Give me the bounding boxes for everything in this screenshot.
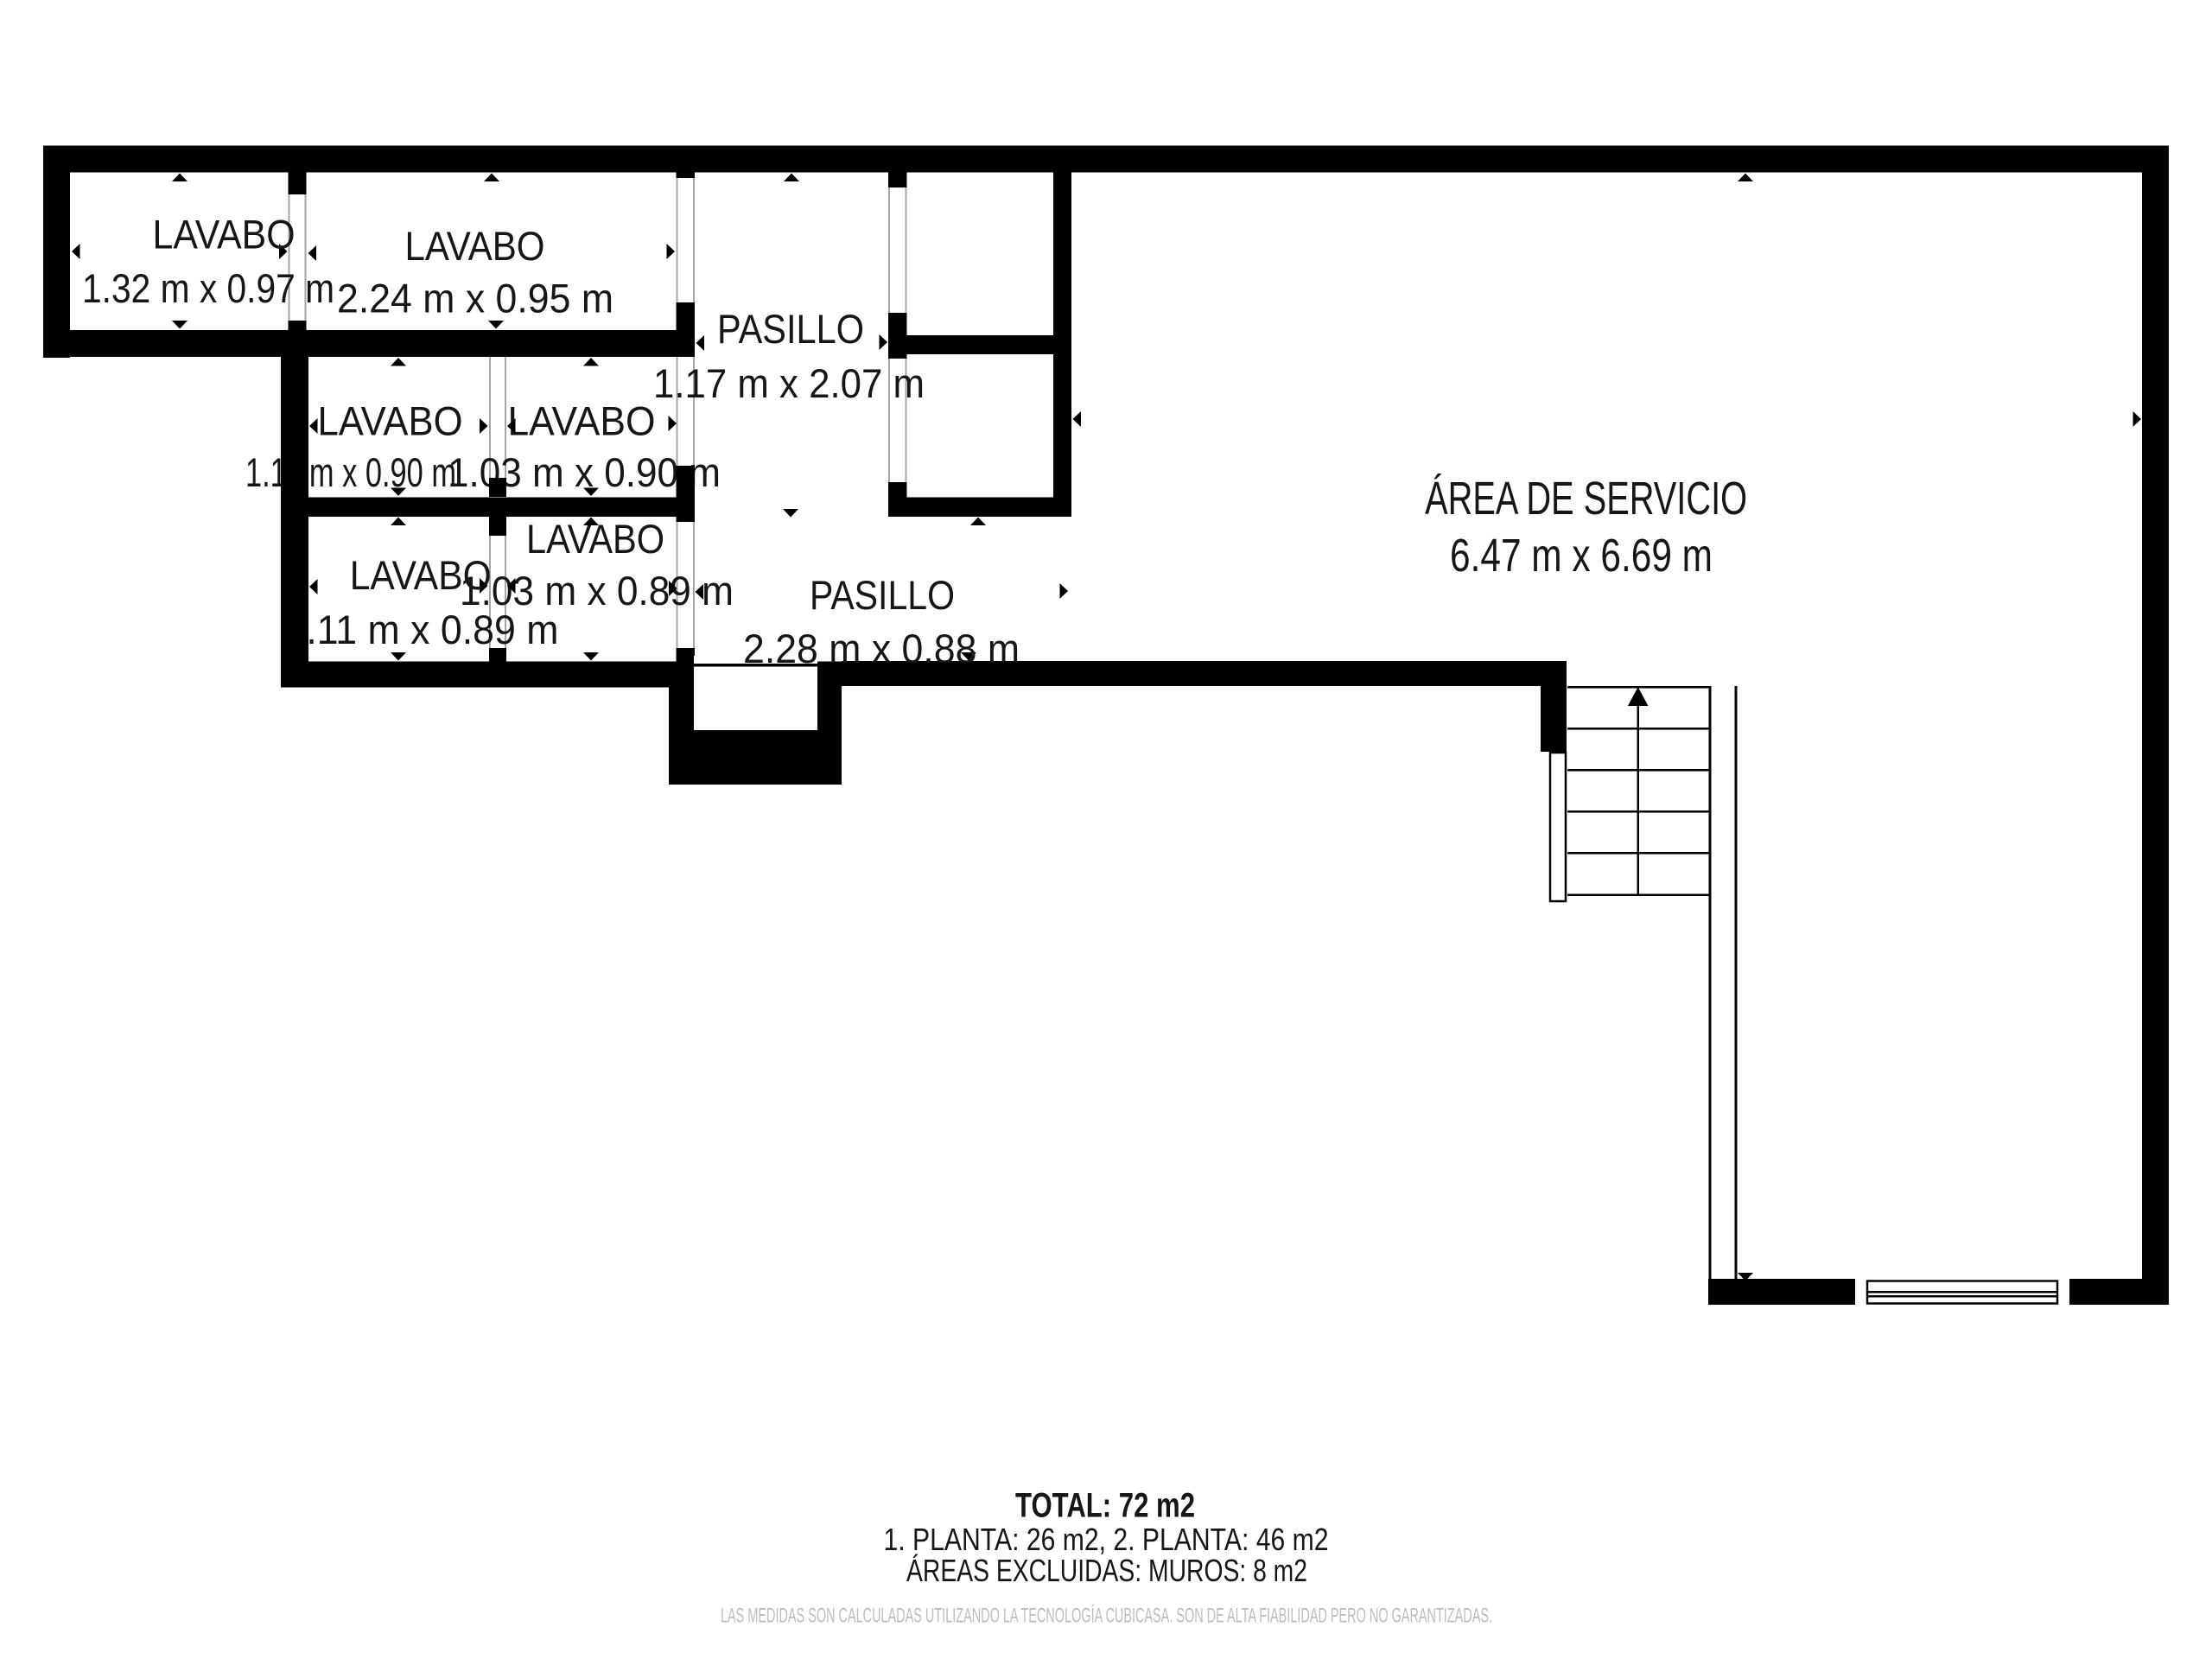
svg-text:LAS MEDIDAS SON CALCULADAS UTI: LAS MEDIDAS SON CALCULADAS UTILIZANDO LA…: [721, 1605, 1492, 1628]
svg-text:TOTAL: 72 m2: TOTAL: 72 m2: [1015, 1487, 1195, 1525]
svg-text:PASILLO: PASILLO: [810, 573, 955, 619]
svg-text:1.11 m x 0.90 m: 1.11 m x 0.90 m: [245, 450, 456, 496]
svg-text:ÁREA DE SERVICIO: ÁREA DE SERVICIO: [1425, 473, 1747, 524]
svg-text:1.32 m x 0.97 m: 1.32 m x 0.97 m: [82, 266, 334, 312]
svg-text:2.28 m x 0.88 m: 2.28 m x 0.88 m: [743, 626, 1020, 672]
svg-text:6.47 m x 6.69 m: 6.47 m x 6.69 m: [1450, 530, 1713, 582]
svg-text:1.17 m x 2.07 m: 1.17 m x 2.07 m: [653, 361, 925, 407]
svg-text:ÁREAS EXCLUIDAS: MUROS: 8 m2: ÁREAS EXCLUIDAS: MUROS: 8 m2: [906, 1553, 1307, 1588]
svg-text:LAVABO: LAVABO: [508, 399, 656, 445]
svg-text:1. PLANTA: 26 m2, 2. PLANTA: 4: 1. PLANTA: 26 m2, 2. PLANTA: 46 m2: [884, 1522, 1329, 1557]
svg-text:LAVABO: LAVABO: [405, 224, 545, 270]
svg-text:PASILLO: PASILLO: [717, 307, 864, 353]
svg-text:1.03 m x 0.89 m: 1.03 m x 0.89 m: [460, 569, 734, 614]
svg-text:2.24 m x 0.95 m: 2.24 m x 0.95 m: [337, 276, 613, 322]
svg-text:LAVABO: LAVABO: [318, 399, 463, 445]
svg-text:LAVABO: LAVABO: [153, 213, 296, 258]
